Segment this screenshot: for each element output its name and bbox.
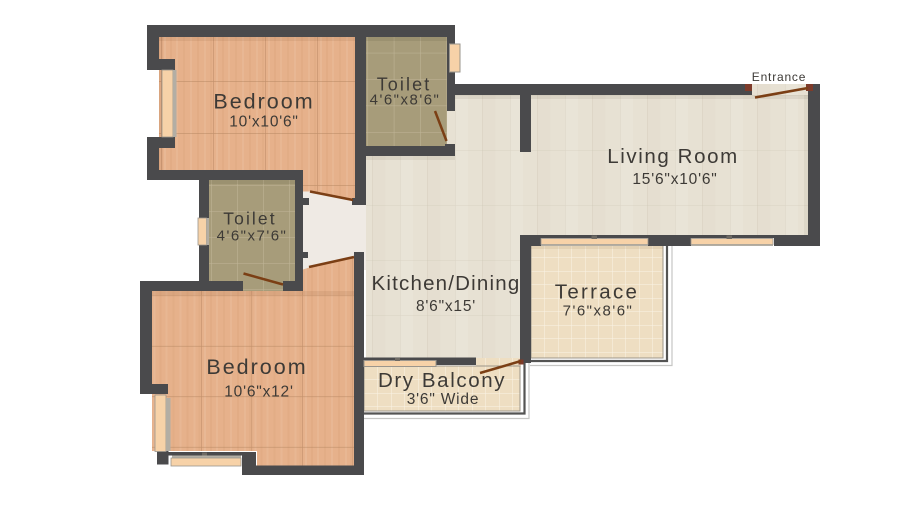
svg-text:Living Room: Living Room <box>607 145 739 168</box>
svg-text:Bedroom: Bedroom <box>206 355 307 379</box>
svg-text:10'6"x12': 10'6"x12' <box>224 384 293 401</box>
svg-text:Toilet: Toilet <box>223 209 276 229</box>
svg-text:4'6"x7'6": 4'6"x7'6" <box>217 228 288 245</box>
svg-text:7'6"x8'6": 7'6"x8'6" <box>563 303 634 320</box>
svg-text:Dry Balcony: Dry Balcony <box>378 369 506 392</box>
svg-text:8'6"x15': 8'6"x15' <box>416 298 476 315</box>
svg-text:Entrance: Entrance <box>752 70 806 84</box>
svg-text:Bedroom: Bedroom <box>213 90 314 114</box>
svg-text:4'6"x8'6": 4'6"x8'6" <box>370 92 441 109</box>
svg-text:15'6"x10'6": 15'6"x10'6" <box>632 171 717 188</box>
svg-text:Kitchen/Dining: Kitchen/Dining <box>372 272 521 295</box>
svg-text:Terrace: Terrace <box>555 281 639 304</box>
svg-text:3'6" Wide: 3'6" Wide <box>407 391 480 408</box>
svg-text:10'x10'6": 10'x10'6" <box>229 114 298 131</box>
